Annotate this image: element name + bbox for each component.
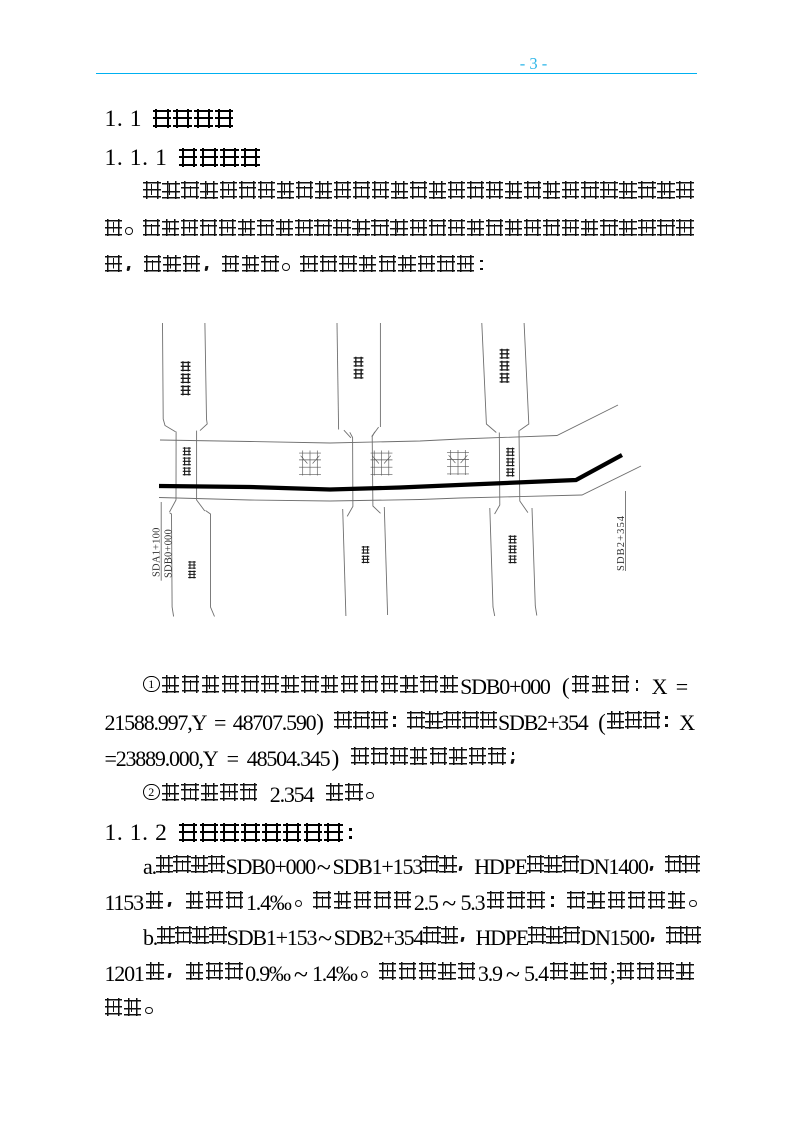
svg-text:SDB0+000: SDB0+000 bbox=[163, 529, 174, 578]
svg-text:SDB2+354: SDB2+354 bbox=[616, 515, 627, 571]
svg-text:SDA1+100: SDA1+100 bbox=[152, 527, 163, 577]
